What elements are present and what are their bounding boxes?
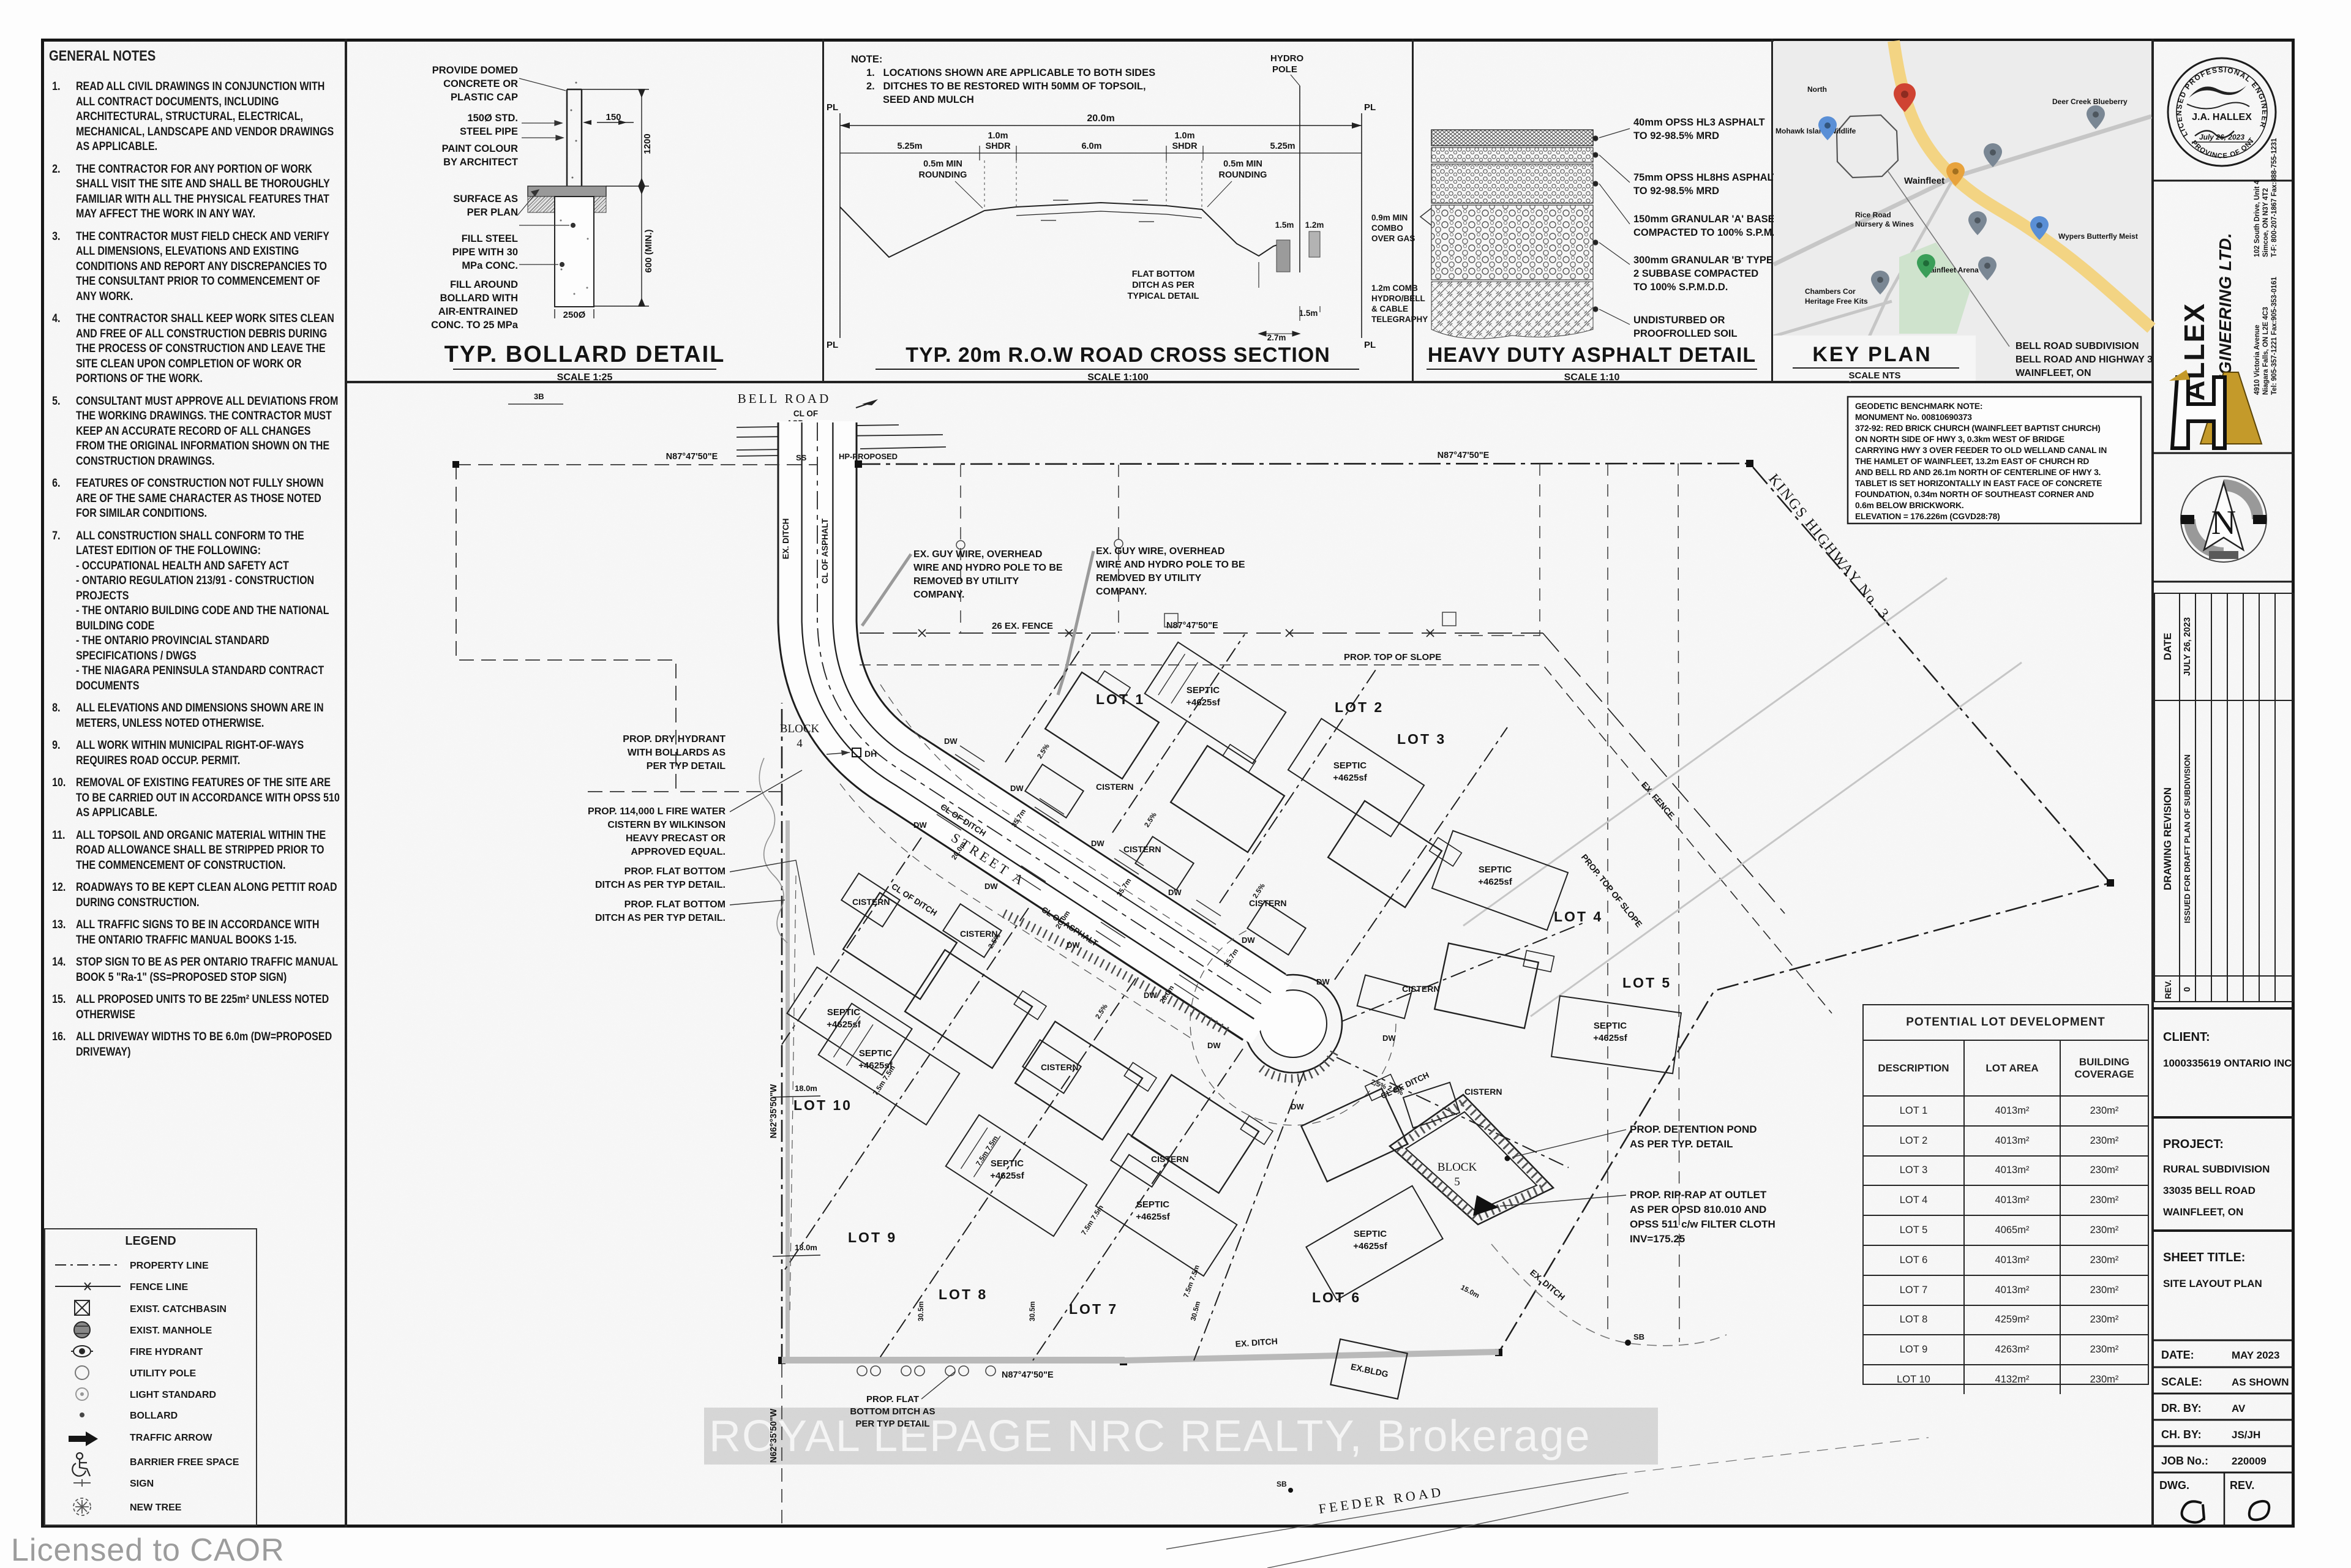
- svg-text:COMPANY.: COMPANY.: [1096, 587, 1147, 597]
- svg-text:CISTERN: CISTERN: [1123, 844, 1161, 854]
- svg-text:2.5%: 2.5%: [1143, 811, 1158, 829]
- svg-text:Wainfleet: Wainfleet: [1904, 176, 1944, 186]
- svg-text:UNDISTURBED OR: UNDISTURBED OR: [1633, 315, 1725, 326]
- svg-text:DATE:: DATE:: [2161, 1349, 2194, 1361]
- svg-text:North: North: [1807, 85, 1827, 94]
- svg-text:DW: DW: [1091, 839, 1104, 848]
- svg-text:COMBO: COMBO: [1371, 223, 1403, 233]
- svg-text:300mm GRANULAR 'B' TYPE: 300mm GRANULAR 'B' TYPE: [1633, 255, 1773, 266]
- svg-text:AS SHOWN: AS SHOWN: [2232, 1376, 2289, 1388]
- svg-text:PIPE WITH 30: PIPE WITH 30: [452, 247, 518, 258]
- svg-text:30.5m: 30.5m: [918, 1301, 925, 1321]
- svg-text:KEY PLAN: KEY PLAN: [1812, 343, 1932, 366]
- svg-text:0.9m MIN: 0.9m MIN: [1371, 213, 1408, 222]
- svg-text:BELL ROAD AND HIGHWAY 3: BELL ROAD AND HIGHWAY 3: [2015, 354, 2153, 365]
- svg-text:ON NORTH SIDE OF HWY 3, 0.3km: ON NORTH SIDE OF HWY 3, 0.3km WEST OF BR…: [1855, 435, 2064, 444]
- svg-text:CISTERN: CISTERN: [1464, 1087, 1502, 1097]
- svg-text:Nursery & Wines: Nursery & Wines: [1855, 220, 1914, 228]
- svg-text:DW: DW: [1010, 784, 1024, 793]
- svg-text:BLOCK: BLOCK: [1438, 1161, 1477, 1174]
- svg-text:5: 5: [1454, 1176, 1460, 1188]
- svg-text:75mm OPSS HL8HS ASPHALT: 75mm OPSS HL8HS ASPHALT: [1633, 172, 1779, 183]
- svg-text:July 26, 2023: July 26, 2023: [2199, 133, 2244, 141]
- svg-text:LOT 4: LOT 4: [1554, 909, 1603, 925]
- svg-text:SEPTIC: SEPTIC: [1479, 865, 1512, 875]
- svg-text:EX.BLDG: EX.BLDG: [1350, 1362, 1389, 1379]
- svg-text:SEPTIC: SEPTIC: [1354, 1229, 1387, 1239]
- svg-text:SEPTIC: SEPTIC: [1136, 1199, 1169, 1210]
- svg-text:MAY 2023: MAY 2023: [2232, 1349, 2279, 1361]
- svg-text:150mm GRANULAR 'A' BASE: 150mm GRANULAR 'A' BASE: [1633, 214, 1775, 225]
- svg-text:ISSUED FOR DRAFT PLAN OF SUBDI: ISSUED FOR DRAFT PLAN OF SUBDIVISION: [2183, 754, 2192, 923]
- svg-text:DRAWING REVISION: DRAWING REVISION: [2162, 787, 2173, 890]
- svg-text:GEODETIC BENCHMARK NOTE:: GEODETIC BENCHMARK NOTE:: [1855, 402, 1982, 411]
- svg-text:SEPTIC: SEPTIC: [1333, 760, 1367, 771]
- svg-text:CL OF DITCH: CL OF DITCH: [890, 882, 939, 918]
- svg-text:DW: DW: [1067, 940, 1080, 950]
- svg-text:Mohawk Island Wildlife: Mohawk Island Wildlife: [1775, 127, 1856, 135]
- svg-text:PER TYP DETAIL: PER TYP DETAIL: [647, 761, 726, 771]
- svg-text:POLE: POLE: [1272, 64, 1297, 75]
- svg-text:COMPACTED TO 100% S.P.M.D.D.: COMPACTED TO 100% S.P.M.D.D.: [1633, 227, 1795, 238]
- svg-text:AS PER TYP. DETAIL: AS PER TYP. DETAIL: [1630, 1138, 1733, 1150]
- svg-text:PL: PL: [827, 340, 838, 350]
- svg-text:LOT 7: LOT 7: [1069, 1301, 1118, 1317]
- svg-text:FLAT BOTTOM: FLAT BOTTOM: [1132, 269, 1195, 279]
- svg-text:PROP. TOP OF SLOPE: PROP. TOP OF SLOPE: [1344, 652, 1441, 662]
- svg-text:Wypers Butterfly Meist: Wypers Butterfly Meist: [2058, 232, 2138, 241]
- svg-text:372-92: RED BRICK CHURCH (WAIN: 372-92: RED BRICK CHURCH (WAINFLEET BAPT…: [1855, 424, 2101, 433]
- svg-text:20.0m: 20.0m: [1087, 113, 1114, 124]
- svg-text:PROP. FLAT BOTTOM: PROP. FLAT BOTTOM: [624, 899, 726, 910]
- svg-text:1.0m: 1.0m: [988, 131, 1008, 141]
- svg-text:PROP. DETENTION POND: PROP. DETENTION POND: [1630, 1123, 1757, 1135]
- svg-text:INV=175.25: INV=175.25: [1630, 1233, 1685, 1245]
- svg-text:CISTERN: CISTERN: [1402, 984, 1439, 994]
- svg-text:+4625sf: +4625sf: [1136, 1212, 1170, 1222]
- svg-text:WIRE AND HYDRO POLE TO BE: WIRE AND HYDRO POLE TO BE: [1096, 560, 1245, 570]
- svg-text:Heritage Free Kits: Heritage Free Kits: [1805, 297, 1868, 306]
- svg-text:SCALE:: SCALE:: [2161, 1376, 2202, 1388]
- svg-text:CONCRETE OR: CONCRETE OR: [443, 78, 518, 89]
- svg-text:HEAVY PRECAST OR: HEAVY PRECAST OR: [626, 833, 726, 844]
- svg-text:2.5%: 2.5%: [1036, 743, 1051, 760]
- svg-text:SEPTIC: SEPTIC: [1594, 1021, 1627, 1031]
- svg-text:CISTERN: CISTERN: [1151, 1154, 1188, 1164]
- svg-text:PROOFROLLED SOIL: PROOFROLLED SOIL: [1633, 328, 1738, 339]
- svg-text:TYP. BOLLARD DETAIL: TYP. BOLLARD DETAIL: [444, 342, 726, 367]
- svg-text:30.5m: 30.5m: [1029, 1301, 1037, 1321]
- svg-text:7.5m 7.5m: 7.5m 7.5m: [1080, 1204, 1104, 1236]
- svg-text:PROJECT:: PROJECT:: [2163, 1138, 2224, 1151]
- svg-text:WAINFLEET, ON: WAINFLEET, ON: [2015, 368, 2091, 378]
- svg-text:PROP. FLAT: PROP. FLAT: [866, 1394, 919, 1405]
- svg-text:LOT 6: LOT 6: [1312, 1289, 1361, 1305]
- svg-text:PER TYP DETAIL: PER TYP DETAIL: [855, 1419, 929, 1429]
- svg-text:15.0m: 15.0m: [1460, 1284, 1480, 1300]
- svg-text:+4625sf: +4625sf: [990, 1171, 1024, 1181]
- svg-text:3B: 3B: [534, 392, 544, 401]
- svg-text:250Ø: 250Ø: [563, 310, 586, 320]
- svg-text:REV.: REV.: [2163, 980, 2173, 999]
- svg-text:DW: DW: [1144, 991, 1157, 1000]
- svg-text:Chambers Cor: Chambers Cor: [1805, 287, 1856, 296]
- svg-text:BOLLARD WITH: BOLLARD WITH: [440, 293, 518, 304]
- svg-text:& CABLE: & CABLE: [1371, 304, 1408, 313]
- svg-text:FILL STEEL: FILL STEEL: [462, 233, 518, 244]
- svg-text:OVER GAS: OVER GAS: [1371, 234, 1415, 243]
- svg-text:AS PER OPSD 810.010 AND: AS PER OPSD 810.010 AND: [1630, 1204, 1766, 1215]
- svg-text:LOT 5: LOT 5: [1622, 975, 1671, 991]
- svg-text:SEPTIC: SEPTIC: [1187, 685, 1220, 696]
- svg-text:SHDR: SHDR: [985, 141, 1011, 151]
- svg-text:Simcoe, ON N3Y 4T2: Simcoe, ON N3Y 4T2: [2262, 188, 2270, 257]
- svg-text:+4625sf: +4625sf: [1593, 1033, 1627, 1043]
- svg-text:CL OF ASPHALT: CL OF ASPHALT: [820, 518, 830, 583]
- svg-text:Deer Creek Blueberry: Deer Creek Blueberry: [2052, 97, 2128, 106]
- svg-text:BELL ROAD: BELL ROAD: [738, 391, 831, 406]
- svg-text:TO 92-98.5% MRD: TO 92-98.5% MRD: [1633, 186, 1719, 197]
- svg-text:REMOVED BY UTILITY: REMOVED BY UTILITY: [913, 576, 1019, 587]
- svg-text:TYP. 20m R.O.W ROAD CROSS SECT: TYP. 20m R.O.W ROAD CROSS SECTION: [906, 343, 1330, 367]
- svg-text:SB: SB: [1633, 1332, 1644, 1341]
- svg-text:TABLET IS SET HORIZONTALLY IN: TABLET IS SET HORIZONTALLY IN EAST FACE …: [1855, 479, 2102, 488]
- svg-text:18.0m: 18.0m: [795, 1084, 817, 1093]
- svg-text:DW: DW: [944, 737, 958, 746]
- svg-text:BLOCK: BLOCK: [780, 722, 820, 735]
- svg-text:TO 92-98.5% MRD: TO 92-98.5% MRD: [1633, 130, 1719, 141]
- svg-text:0.5m MIN: 0.5m MIN: [1223, 159, 1262, 169]
- svg-text:SCALE 1:25: SCALE 1:25: [557, 372, 613, 383]
- svg-text:JS/JH: JS/JH: [2232, 1429, 2260, 1441]
- svg-text:PL: PL: [1364, 340, 1376, 350]
- svg-text:150Ø STD.: 150Ø STD.: [467, 113, 518, 124]
- svg-text:4: 4: [797, 737, 803, 750]
- svg-text:CONC. TO 25 MPa: CONC. TO 25 MPa: [431, 320, 519, 331]
- svg-text:26 EX. FENCE: 26 EX. FENCE: [992, 621, 1053, 631]
- svg-text:1.2m: 1.2m: [1305, 220, 1324, 230]
- svg-text:PROP. FLAT BOTTOM: PROP. FLAT BOTTOM: [624, 866, 726, 877]
- svg-text:5.25m: 5.25m: [897, 141, 922, 151]
- svg-text:CISTERN: CISTERN: [852, 897, 890, 907]
- svg-text:TELEGRAPHY: TELEGRAPHY: [1371, 315, 1428, 324]
- svg-text:33035 BELL ROAD: 33035 BELL ROAD: [2163, 1185, 2255, 1196]
- svg-text:220009: 220009: [2232, 1455, 2267, 1467]
- svg-text:DW: DW: [1291, 1102, 1304, 1111]
- svg-text:NOTE:: NOTE:: [851, 54, 882, 65]
- svg-text:AND BELL RD AND 26.1m NORTH OF: AND BELL RD AND 26.1m NORTH OF CENTERLIN…: [1855, 468, 2101, 477]
- svg-text:CL OF: CL OF: [793, 409, 818, 418]
- svg-text:BOTTOM DITCH AS: BOTTOM DITCH AS: [850, 1406, 935, 1417]
- svg-text:J.A. HALLEX: J.A. HALLEX: [2192, 112, 2252, 122]
- svg-text:SHDR: SHDR: [1172, 141, 1198, 151]
- svg-text:1200: 1200: [642, 133, 653, 154]
- svg-text:+4625sf: +4625sf: [1186, 697, 1220, 708]
- svg-text:0: 0: [2183, 987, 2192, 992]
- svg-text:LOT 2: LOT 2: [1335, 699, 1384, 715]
- svg-text:DW: DW: [984, 882, 998, 891]
- svg-text:PER PLAN: PER PLAN: [467, 207, 518, 218]
- svg-text:DITCH AS PER TYP DETAIL.: DITCH AS PER TYP DETAIL.: [595, 913, 726, 923]
- svg-text:WAINFLEET, ON: WAINFLEET, ON: [2163, 1206, 2243, 1218]
- svg-text:4910 Victoria Avenue: 4910 Victoria Avenue: [2254, 324, 2261, 395]
- svg-text:OPSS 511 c/w FILTER CLOTH: OPSS 511 c/w FILTER CLOTH: [1630, 1218, 1775, 1230]
- svg-text:THE HAMLET OF WAINFLEET, 13.2m: THE HAMLET OF WAINFLEET, 13.2m EAST OF C…: [1855, 457, 2089, 466]
- svg-text:2.5%: 2.5%: [1094, 1003, 1109, 1021]
- svg-text:JOB No.:: JOB No.:: [2161, 1455, 2208, 1467]
- svg-text:PLASTIC CAP: PLASTIC CAP: [451, 92, 518, 103]
- svg-text:DW: DW: [1316, 977, 1330, 986]
- svg-text:SCALE 1:10: SCALE 1:10: [1564, 372, 1620, 383]
- svg-text:SB: SB: [1277, 1480, 1287, 1488]
- svg-text:Niagara Falls, ON L2E 4C3: Niagara Falls, ON L2E 4C3: [2262, 307, 2270, 395]
- svg-text:LOT 3: LOT 3: [1397, 731, 1446, 747]
- svg-text:RURAL SUBDIVISION: RURAL SUBDIVISION: [2163, 1163, 2270, 1175]
- svg-text:REMOVED BY UTILITY: REMOVED BY UTILITY: [1096, 573, 1201, 583]
- svg-text:7.5m 7.5m: 7.5m 7.5m: [1183, 1264, 1201, 1299]
- svg-text:CLIENT:: CLIENT:: [2163, 1030, 2210, 1044]
- svg-text:DW: DW: [913, 820, 927, 830]
- svg-text:JULY 26, 2023: JULY 26, 2023: [2183, 617, 2192, 676]
- svg-text:PROP. RIP-RAP AT OUTLET: PROP. RIP-RAP AT OUTLET: [1630, 1189, 1767, 1201]
- svg-text:CH. BY:: CH. BY:: [2161, 1428, 2202, 1441]
- svg-text:1.5m: 1.5m: [1275, 220, 1294, 230]
- svg-text:ROUNDING: ROUNDING: [1219, 170, 1267, 180]
- svg-text:HYDRO/BELL: HYDRO/BELL: [1371, 294, 1425, 303]
- svg-text:DWG.: DWG.: [2159, 1479, 2189, 1491]
- svg-text:BELL ROAD SUBDIVISION: BELL ROAD SUBDIVISION: [2015, 341, 2139, 351]
- svg-text:APPROVED EQUAL.: APPROVED EQUAL.: [631, 847, 726, 857]
- svg-text:TO 100% S.P.M.D.D.: TO 100% S.P.M.D.D.: [1633, 282, 1728, 293]
- svg-text:HP-PROPOSED: HP-PROPOSED: [839, 452, 898, 461]
- svg-text:40mm OPSS HL3 ASPHALT: 40mm OPSS HL3 ASPHALT: [1633, 117, 1765, 128]
- svg-text:LOT 9: LOT 9: [848, 1229, 897, 1245]
- svg-text:EX. DITCH: EX. DITCH: [1235, 1336, 1278, 1349]
- svg-text:MONUMENT No. 00810690373: MONUMENT No. 00810690373: [1855, 413, 1972, 422]
- svg-text:6.0m: 6.0m: [1081, 141, 1101, 151]
- svg-text:+4625sf: +4625sf: [1478, 877, 1512, 887]
- svg-text:SEPTIC: SEPTIC: [991, 1158, 1024, 1169]
- svg-text:N87°47'50"E: N87°47'50"E: [1002, 1370, 1054, 1380]
- svg-text:1.2m COMB: 1.2m COMB: [1371, 283, 1418, 293]
- svg-text:EX. GUY WIRE, OVERHEAD: EX. GUY WIRE, OVERHEAD: [1096, 546, 1224, 557]
- svg-text:LICENSED PROFESSIONAL ENGINEER: LICENSED PROFESSIONAL ENGINEER: [2175, 66, 2269, 138]
- svg-text:EX. GUY WIRE, OVERHEAD: EX. GUY WIRE, OVERHEAD: [913, 549, 1042, 560]
- svg-text:ELEVATION = 176.226m (CGVD28:7: ELEVATION = 176.226m (CGVD28:78): [1855, 512, 2000, 521]
- svg-text:CISTERN BY WILKINSON: CISTERN BY WILKINSON: [607, 820, 726, 830]
- svg-text:CISTERN: CISTERN: [960, 929, 997, 939]
- svg-text:ROUNDING: ROUNDING: [919, 170, 967, 180]
- svg-text:PROP. 114,000 L FIRE WATER: PROP. 114,000 L FIRE WATER: [588, 806, 726, 817]
- svg-text:TYPICAL DETAIL: TYPICAL DETAIL: [1127, 291, 1199, 301]
- svg-text:PL: PL: [827, 102, 838, 113]
- svg-text:REV.: REV.: [2230, 1479, 2254, 1491]
- svg-text:MPa CONC.: MPa CONC.: [462, 260, 518, 271]
- svg-text:SHEET TITLE:: SHEET TITLE:: [2163, 1251, 2245, 1264]
- svg-text:N87°47'50"E: N87°47'50"E: [1438, 451, 1490, 460]
- svg-text:HEAVY DUTY ASPHALT DETAIL: HEAVY DUTY ASPHALT DETAIL: [1428, 343, 1756, 367]
- svg-text:Tel: 905-357-1221 Fax:905-353: Tel: 905-357-1221 Fax:905-353-0161: [2271, 277, 2278, 395]
- svg-text:2.7m: 2.7m: [1267, 333, 1286, 342]
- svg-text:DITCH AS PER: DITCH AS PER: [1132, 280, 1194, 290]
- svg-text:0.6m BELOW BRICKWORK.: 0.6m BELOW BRICKWORK.: [1855, 501, 1963, 510]
- svg-text:DATE: DATE: [2162, 632, 2173, 660]
- svg-text:SURFACE AS: SURFACE AS: [453, 193, 518, 204]
- svg-text:2. DITCHES TO BE RESTORED WI: 2. DITCHES TO BE RESTORED WITH 50MM OF T…: [866, 81, 1146, 92]
- svg-text:PROVIDE DOMED: PROVIDE DOMED: [432, 65, 518, 76]
- svg-text:N: N: [2211, 504, 2236, 542]
- svg-text:+4625sf: +4625sf: [827, 1019, 861, 1030]
- svg-text:DR. BY:: DR. BY:: [2161, 1402, 2202, 1414]
- svg-text:2.5%: 2.5%: [1251, 882, 1266, 900]
- svg-text:DW: DW: [1207, 1041, 1221, 1050]
- svg-text:LOT 10: LOT 10: [793, 1097, 852, 1113]
- svg-text:N87°47'50"E: N87°47'50"E: [1166, 621, 1218, 631]
- svg-text:AV: AV: [2232, 1403, 2246, 1414]
- svg-text:SEPTIC: SEPTIC: [827, 1007, 860, 1018]
- svg-text:DW: DW: [1168, 888, 1182, 897]
- svg-text:HYDRO: HYDRO: [1270, 53, 1304, 64]
- svg-text:CISTERN: CISTERN: [1096, 782, 1133, 792]
- svg-text:DITCH AS PER TYP DETAIL.: DITCH AS PER TYP DETAIL.: [595, 880, 726, 890]
- svg-text:LOT 1: LOT 1: [1096, 691, 1145, 707]
- svg-text:0.5m MIN: 0.5m MIN: [923, 159, 962, 169]
- svg-text:1000335619 ONTARIO INC.: 1000335619 ONTARIO INC.: [2163, 1057, 2295, 1069]
- svg-text:PL: PL: [1364, 102, 1376, 113]
- svg-text:FOUNDATION, 0.34m NORTH OF SOU: FOUNDATION, 0.34m NORTH OF SOUTHEAST COR…: [1855, 490, 2094, 499]
- svg-text:CARRYING HWY 3 OVER FEEDER TO: CARRYING HWY 3 OVER FEEDER TO OLD WELLAN…: [1855, 446, 2107, 455]
- svg-text:EX. DITCH: EX. DITCH: [781, 519, 790, 560]
- svg-text:DH: DH: [864, 749, 877, 759]
- svg-text:+4625sf: +4625sf: [1333, 773, 1367, 783]
- svg-text:PAINT COLOUR: PAINT COLOUR: [442, 143, 518, 154]
- svg-text:N62°35'50"W: N62°35'50"W: [769, 1408, 779, 1463]
- svg-text:Rice Road: Rice Road: [1855, 211, 1891, 219]
- svg-text:COMPANY.: COMPANY.: [913, 590, 964, 600]
- svg-text:SEED AND MULCH: SEED AND MULCH: [883, 94, 974, 105]
- svg-text:BY ARCHITECT: BY ARCHITECT: [443, 157, 518, 168]
- svg-text:N87°47'50"E: N87°47'50"E: [666, 452, 718, 462]
- svg-text:SEPTIC: SEPTIC: [859, 1048, 892, 1059]
- svg-text:30.5m: 30.5m: [1190, 1300, 1202, 1322]
- svg-text:LOT 8: LOT 8: [939, 1286, 988, 1302]
- svg-text:2 SUBBASE COMPACTED: 2 SUBBASE COMPACTED: [1633, 268, 1758, 279]
- svg-text:102 South Drive, Unit 4: 102 South Drive, Unit 4: [2254, 180, 2261, 257]
- svg-text:WIRE AND HYDRO POLE TO BE: WIRE AND HYDRO POLE TO BE: [913, 563, 1063, 573]
- svg-text:FEEDER ROAD: FEEDER ROAD: [1318, 1484, 1444, 1517]
- svg-text:5.25m: 5.25m: [1270, 141, 1295, 151]
- svg-text:AIR-ENTRAINED: AIR-ENTRAINED: [438, 306, 518, 317]
- svg-text:WITH BOLLARDS AS: WITH BOLLARDS AS: [628, 748, 726, 758]
- svg-text:SS: SS: [796, 453, 807, 462]
- svg-text:SCALE NTS: SCALE NTS: [1848, 370, 1900, 381]
- svg-text:+4625sf: +4625sf: [1353, 1241, 1387, 1251]
- svg-text:DW: DW: [1242, 936, 1255, 945]
- svg-text:N62°35'50"W: N62°35'50"W: [769, 1084, 779, 1138]
- svg-text:600 (MIN.): 600 (MIN.): [643, 230, 654, 273]
- svg-text:EX. DITCH: EX. DITCH: [1528, 1267, 1567, 1302]
- svg-text:CISTERN: CISTERN: [1041, 1062, 1078, 1072]
- svg-text:SITE LAYOUT PLAN: SITE LAYOUT PLAN: [2163, 1278, 2262, 1289]
- svg-text:1. LOCATIONS SHOWN ARE APPLI: 1. LOCATIONS SHOWN ARE APPLICABLE TO BOT…: [866, 67, 1155, 78]
- svg-text:PROP. DRY HYDRANT: PROP. DRY HYDRANT: [623, 734, 726, 745]
- svg-text:SCALE 1:100: SCALE 1:100: [1087, 372, 1149, 383]
- svg-text:STEEL PIPE: STEEL PIPE: [460, 126, 518, 137]
- svg-text:1.0m: 1.0m: [1174, 131, 1194, 141]
- svg-text:T-F: 800-207-1867 Fax:888-755: T-F: 800-207-1867 Fax:888-755-1231: [2271, 138, 2278, 257]
- svg-text:DW: DW: [1382, 1033, 1396, 1043]
- svg-text:1.5m: 1.5m: [1299, 309, 1318, 318]
- svg-text:FILL AROUND: FILL AROUND: [450, 279, 518, 290]
- svg-text:CISTERN: CISTERN: [1249, 898, 1286, 908]
